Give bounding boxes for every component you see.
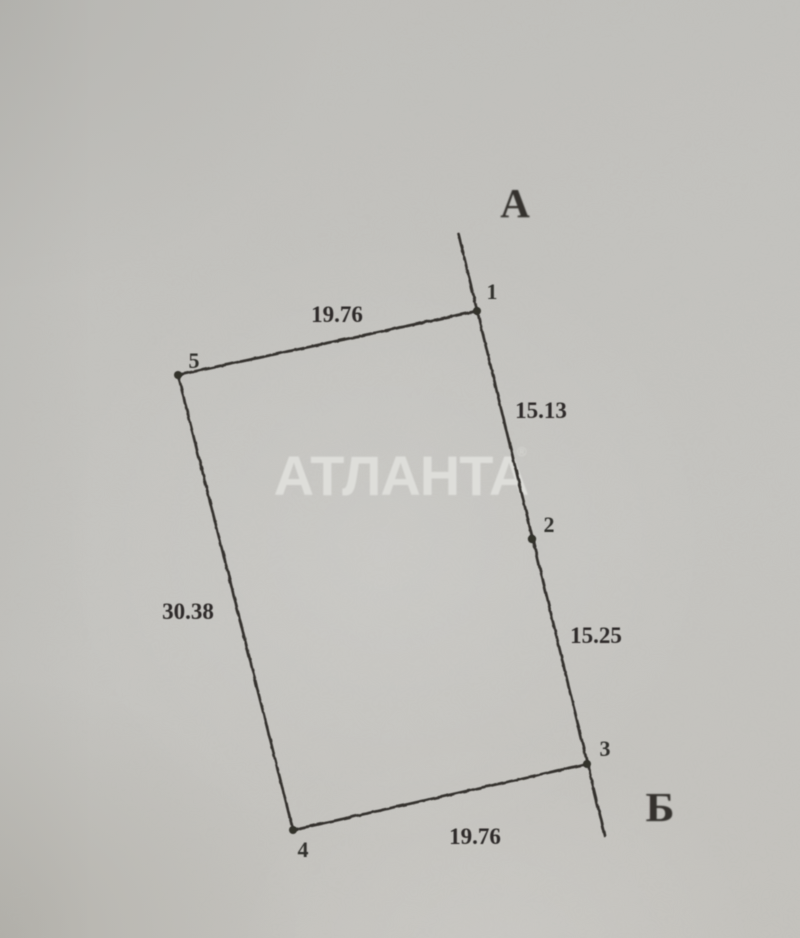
svg-text:19.76: 19.76 (449, 824, 501, 849)
svg-text:5: 5 (189, 348, 200, 373)
svg-text:15.25: 15.25 (570, 623, 622, 648)
svg-text:А: А (500, 180, 530, 226)
svg-text:®: ® (517, 444, 527, 459)
svg-text:3: 3 (600, 736, 611, 761)
svg-text:Б: Б (646, 784, 675, 830)
svg-text:1: 1 (487, 279, 498, 304)
svg-text:19.76: 19.76 (311, 302, 363, 327)
svg-text:15.13: 15.13 (515, 398, 567, 423)
svg-text:АТЛАНТА: АТЛАНТА (274, 444, 529, 507)
svg-text:4: 4 (298, 837, 309, 862)
svg-text:2: 2 (544, 512, 555, 537)
svg-text:30.38: 30.38 (162, 599, 214, 624)
